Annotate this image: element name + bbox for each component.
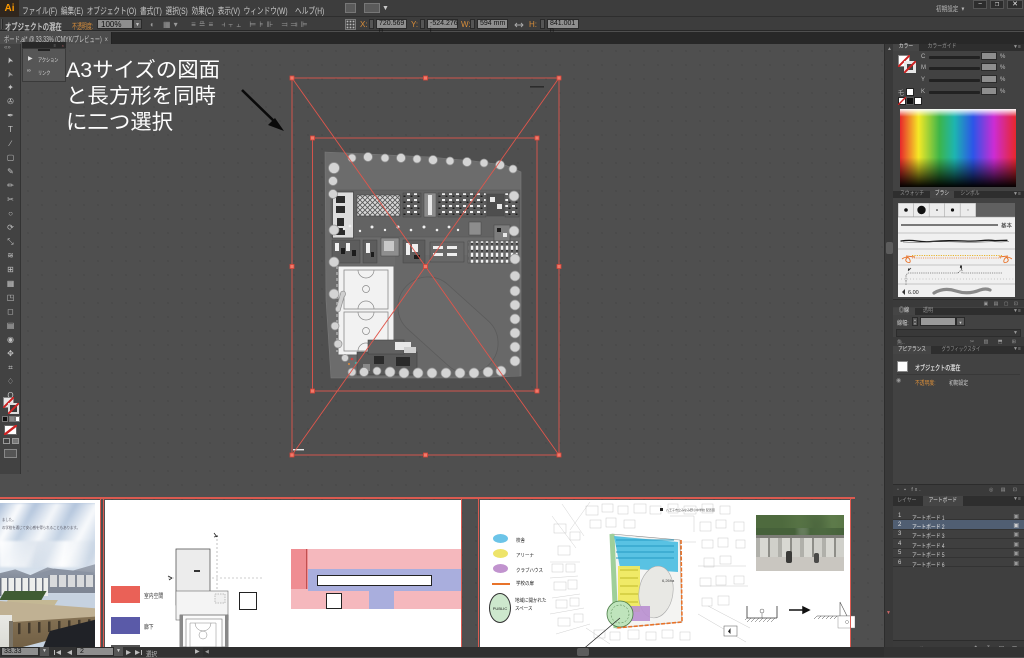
svg-text:八王子市立みなみ野小中学校 配置図: 八王子市立みなみ野小中学校 配置図: [666, 507, 715, 512]
svg-text:6,26ha: 6,26ha: [662, 578, 675, 583]
svg-text:6.00: 6.00: [908, 290, 919, 296]
svg-text:基本: 基本: [1001, 222, 1013, 230]
